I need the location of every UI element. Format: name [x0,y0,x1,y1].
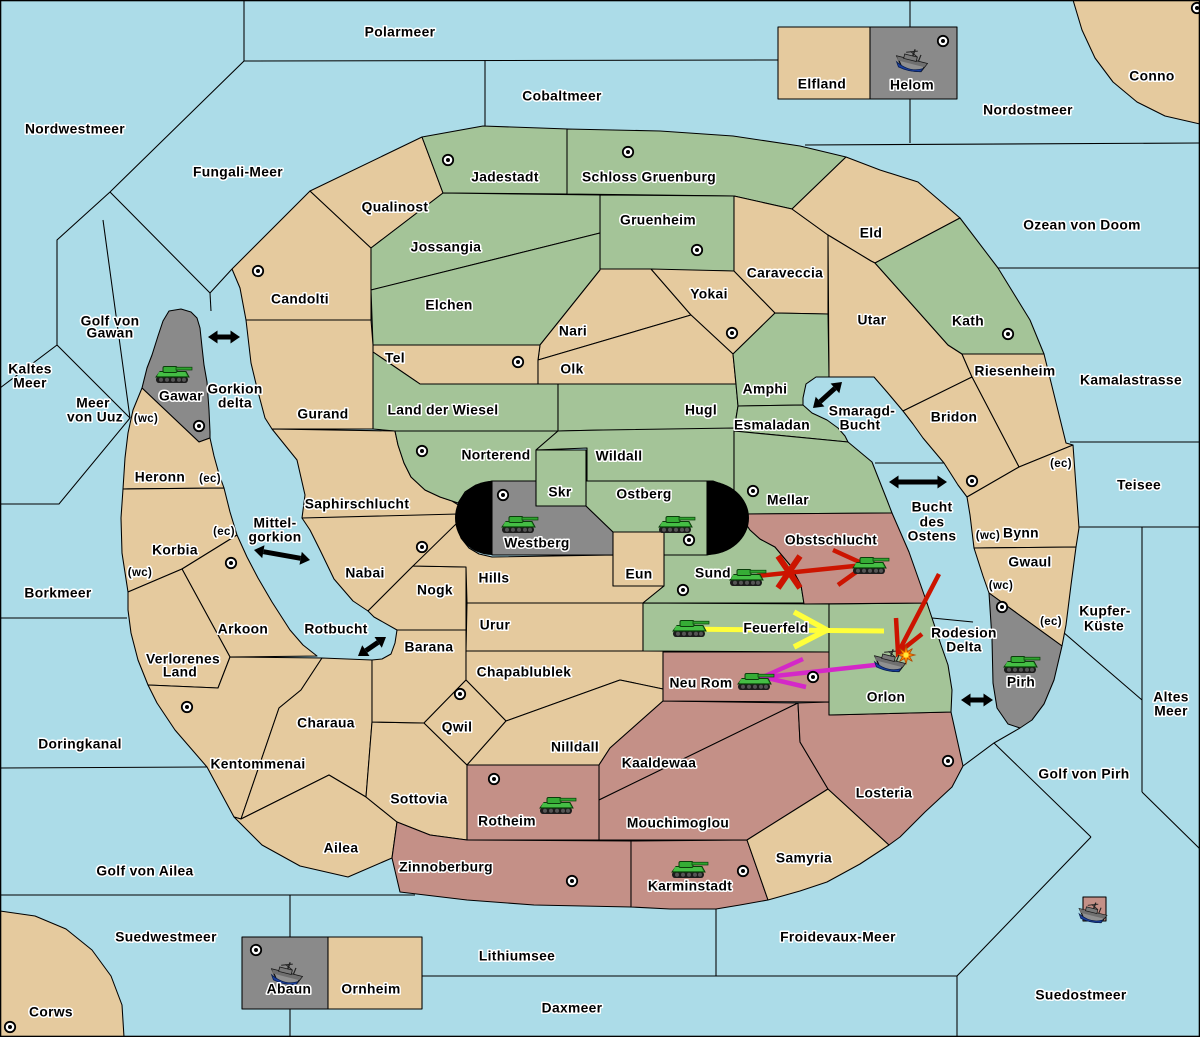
svg-text:Bucht: Bucht [912,500,953,515]
svg-text:Suedostmeer: Suedostmeer [1035,988,1127,1003]
svg-text:Samyria: Samyria [776,851,832,866]
svg-text:Fungali-Meer: Fungali-Meer [193,165,283,180]
svg-text:(ec): (ec) [1050,458,1072,470]
svg-text:Gawan: Gawan [87,326,134,341]
svg-text:Corws: Corws [29,1005,73,1020]
svg-text:Bynn: Bynn [1003,526,1039,541]
svg-text:Golf von Pirh: Golf von Pirh [1038,767,1129,782]
svg-text:Bridon: Bridon [931,410,978,425]
svg-text:Gwaul: Gwaul [1008,555,1051,570]
svg-text:Olk: Olk [560,362,583,377]
svg-text:Nordwestmeer: Nordwestmeer [25,122,125,137]
svg-text:Norterend: Norterend [461,448,530,463]
svg-text:Conno: Conno [1129,69,1174,84]
svg-text:Eun: Eun [625,567,652,582]
svg-text:Feuerfeld: Feuerfeld [743,621,808,636]
svg-text:Mouchimoglou: Mouchimoglou [627,816,729,831]
svg-text:Mittel-: Mittel- [253,516,296,531]
svg-text:Sund: Sund [695,566,731,581]
svg-text:Urur: Urur [480,618,511,633]
svg-text:Kupfer-: Kupfer- [1079,604,1131,619]
svg-text:Rotheim: Rotheim [478,814,536,829]
svg-text:Kaltes: Kaltes [8,362,52,377]
svg-text:Orlon: Orlon [867,690,906,705]
svg-text:Froidevaux-Meer: Froidevaux-Meer [780,930,896,945]
svg-text:Hugl: Hugl [685,403,717,418]
svg-text:Yokai: Yokai [690,287,728,302]
svg-text:Teisee: Teisee [1117,478,1161,493]
svg-text:Jadestadt: Jadestadt [471,170,539,185]
svg-text:Nogk: Nogk [417,583,453,598]
svg-text:Barana: Barana [405,640,454,655]
svg-text:Kentommenai: Kentommenai [210,757,305,772]
svg-text:Skr: Skr [548,485,572,500]
svg-text:Nordostmeer: Nordostmeer [983,103,1073,118]
svg-text:Korbia: Korbia [152,543,198,558]
svg-text:Pirh: Pirh [1007,675,1035,690]
svg-text:Kaaldewaa: Kaaldewaa [622,756,696,771]
svg-text:des: des [920,515,945,530]
svg-text:Caraveccia: Caraveccia [747,266,823,281]
svg-text:Chapablublek: Chapablublek [477,665,572,680]
svg-text:Ornheim: Ornheim [341,982,400,997]
svg-text:Jossangia: Jossangia [411,240,482,255]
svg-text:Gurand: Gurand [297,407,348,422]
svg-text:Meer: Meer [13,376,47,391]
svg-text:(wc): (wc) [989,580,1013,592]
svg-text:Westberg: Westberg [504,536,569,551]
svg-text:Gawar: Gawar [159,389,203,404]
svg-text:Qwil: Qwil [442,720,473,735]
svg-text:Abaun: Abaun [267,982,312,997]
svg-text:delta: delta [218,396,252,411]
svg-text:Heronn: Heronn [135,470,185,485]
svg-text:Qualinost: Qualinost [362,200,429,215]
svg-text:Land der Wiesel: Land der Wiesel [388,403,499,418]
svg-text:Elfland: Elfland [798,77,846,92]
svg-text:Utar: Utar [857,313,886,328]
svg-text:Esmaladan: Esmaladan [734,418,810,433]
svg-text:Saphirschlucht: Saphirschlucht [305,497,410,512]
svg-text:Losteria: Losteria [856,786,912,801]
svg-text:Nilldall: Nilldall [551,740,599,755]
svg-text:von Uuz: von Uuz [67,410,123,425]
svg-text:Meer: Meer [1154,704,1188,719]
svg-text:Gorkion: Gorkion [207,382,262,397]
svg-text:Arkoon: Arkoon [218,622,268,637]
svg-text:Helom: Helom [890,78,934,93]
svg-text:Polarmeer: Polarmeer [365,25,436,40]
svg-text:Daxmeer: Daxmeer [542,1001,603,1016]
svg-text:Tel: Tel [385,351,405,366]
svg-text:Ailea: Ailea [324,841,359,856]
svg-text:Golf von Ailea: Golf von Ailea [96,864,193,879]
svg-text:(wc): (wc) [128,567,152,579]
svg-text:Zinnoberburg: Zinnoberburg [399,860,493,875]
svg-text:Nabai: Nabai [345,566,384,581]
svg-text:Smaragd-: Smaragd- [829,404,895,419]
svg-text:Charaua: Charaua [297,716,355,731]
svg-text:Nari: Nari [559,324,587,339]
svg-text:Doringkanal: Doringkanal [38,737,122,752]
svg-text:Küste: Küste [1084,619,1124,634]
svg-text:Hills: Hills [479,571,510,586]
svg-text:Wildall: Wildall [596,449,643,464]
svg-text:(ec): (ec) [199,473,221,485]
svg-text:Ostens: Ostens [908,529,957,544]
svg-text:(ec): (ec) [213,526,235,538]
svg-text:Suedwestmeer: Suedwestmeer [115,930,217,945]
svg-text:Karminstadt: Karminstadt [648,879,732,894]
svg-text:Cobaltmeer: Cobaltmeer [522,89,602,104]
svg-text:Obstschlucht: Obstschlucht [785,533,877,548]
svg-text:Lithiumsee: Lithiumsee [479,949,555,964]
svg-text:Land: Land [163,665,197,680]
svg-text:(wc): (wc) [976,530,1000,542]
svg-text:Candolti: Candolti [271,292,329,307]
svg-text:Kamalastrasse: Kamalastrasse [1080,373,1182,388]
svg-text:Eld: Eld [860,226,883,241]
svg-text:Amphi: Amphi [743,382,788,397]
svg-text:Ostberg: Ostberg [616,487,671,502]
svg-text:(wc): (wc) [134,413,158,425]
svg-text:Sottovia: Sottovia [390,792,447,807]
svg-text:Riesenheim: Riesenheim [975,364,1056,379]
svg-text:Elchen: Elchen [425,298,472,313]
svg-text:Altes: Altes [1153,690,1189,705]
svg-text:(ec): (ec) [1040,616,1062,628]
svg-text:Rodesion: Rodesion [931,626,997,641]
svg-text:Borkmeer: Borkmeer [24,586,91,601]
svg-text:Bucht: Bucht [840,418,881,433]
svg-text:Kath: Kath [952,314,984,329]
svg-text:Meer: Meer [76,396,110,411]
svg-text:Mellar: Mellar [767,493,809,508]
svg-text:Ozean von Doom: Ozean von Doom [1023,218,1141,233]
svg-text:Schloss Gruenburg: Schloss Gruenburg [582,170,716,185]
svg-text:Neu Rom: Neu Rom [669,676,732,691]
svg-text:gorkion: gorkion [248,530,301,545]
svg-text:Rotbucht: Rotbucht [304,622,367,637]
svg-text:Delta: Delta [946,640,982,655]
svg-text:Gruenheim: Gruenheim [620,213,696,228]
